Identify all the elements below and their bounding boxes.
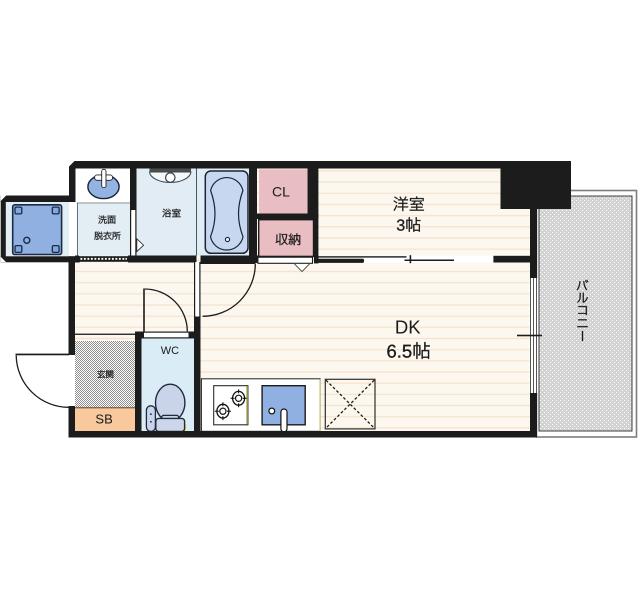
svg-text:CL: CL [272,184,290,200]
svg-text:SB: SB [95,412,112,427]
svg-text:DK: DK [395,317,421,338]
svg-text:WC: WC [161,345,179,357]
